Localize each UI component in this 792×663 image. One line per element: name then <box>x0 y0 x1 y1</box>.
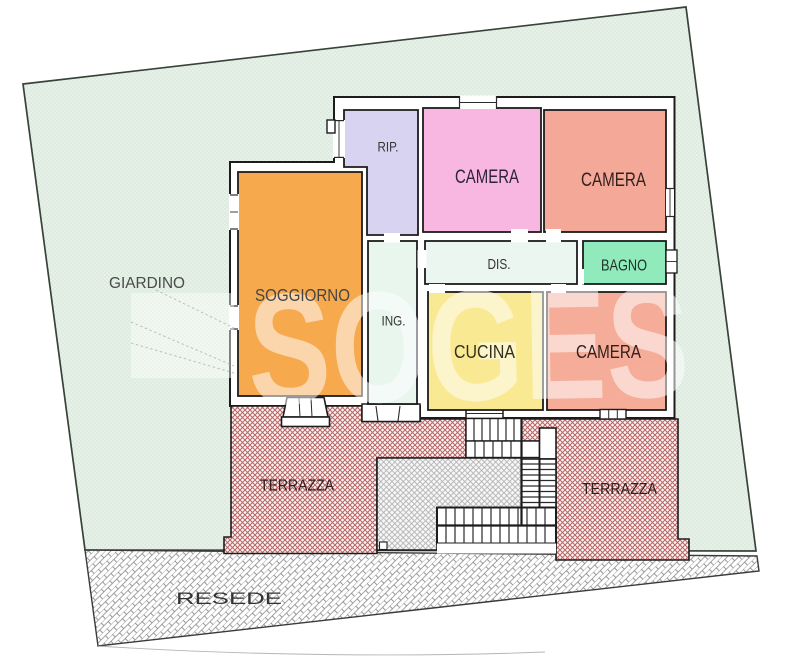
svg-text:CAMERA: CAMERA <box>576 341 642 362</box>
svg-text:SOGGIORNO: SOGGIORNO <box>255 285 350 305</box>
svg-text:RESEDE: RESEDE <box>176 589 282 608</box>
svg-text:TERRAZZA: TERRAZZA <box>582 481 658 498</box>
svg-text:ING.: ING. <box>382 313 406 329</box>
svg-text:BAGNO: BAGNO <box>601 258 647 275</box>
svg-text:RIP.: RIP. <box>378 140 399 155</box>
svg-text:GIARDINO: GIARDINO <box>109 275 185 292</box>
svg-text:CAMERA: CAMERA <box>581 170 646 191</box>
svg-text:TERRAZZA: TERRAZZA <box>260 478 335 495</box>
svg-text:CAMERA: CAMERA <box>455 167 519 188</box>
svg-text:DIS.: DIS. <box>488 256 511 273</box>
svg-text:CUCINA: CUCINA <box>454 341 516 362</box>
